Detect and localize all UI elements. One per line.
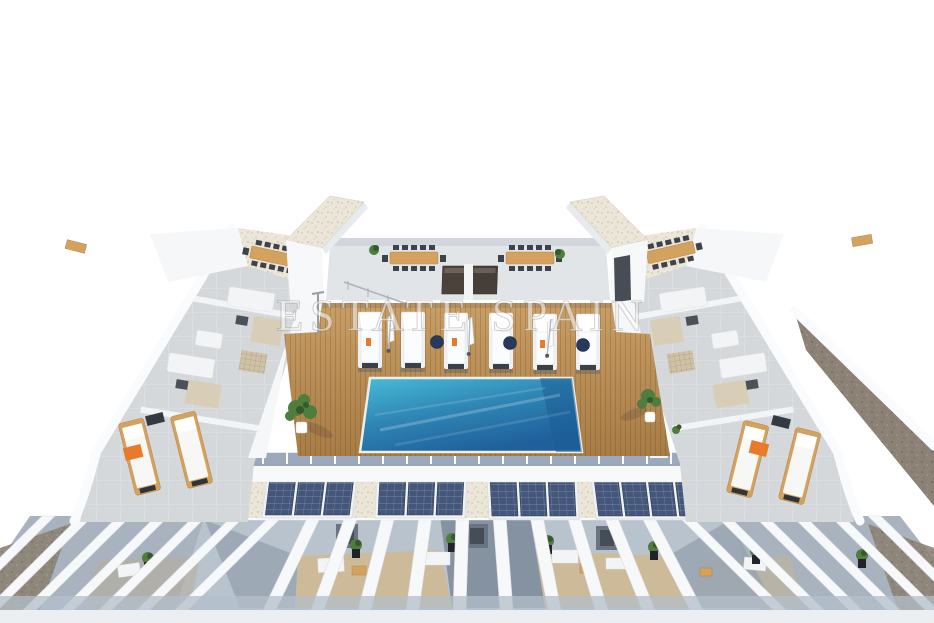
deck-fascia: [238, 464, 698, 482]
watermark: ESTATE SPAIN: [276, 291, 649, 340]
rooftop-render-image: ESTATE SPAIN: [0, 0, 934, 623]
ground-strip: [0, 610, 934, 623]
pergola-level: [0, 512, 934, 610]
pouf: [577, 339, 590, 352]
building-shadow: [0, 596, 934, 612]
swimming-pool: [360, 378, 582, 452]
rooftop-3d-render: ESTATE SPAIN: [0, 0, 934, 623]
